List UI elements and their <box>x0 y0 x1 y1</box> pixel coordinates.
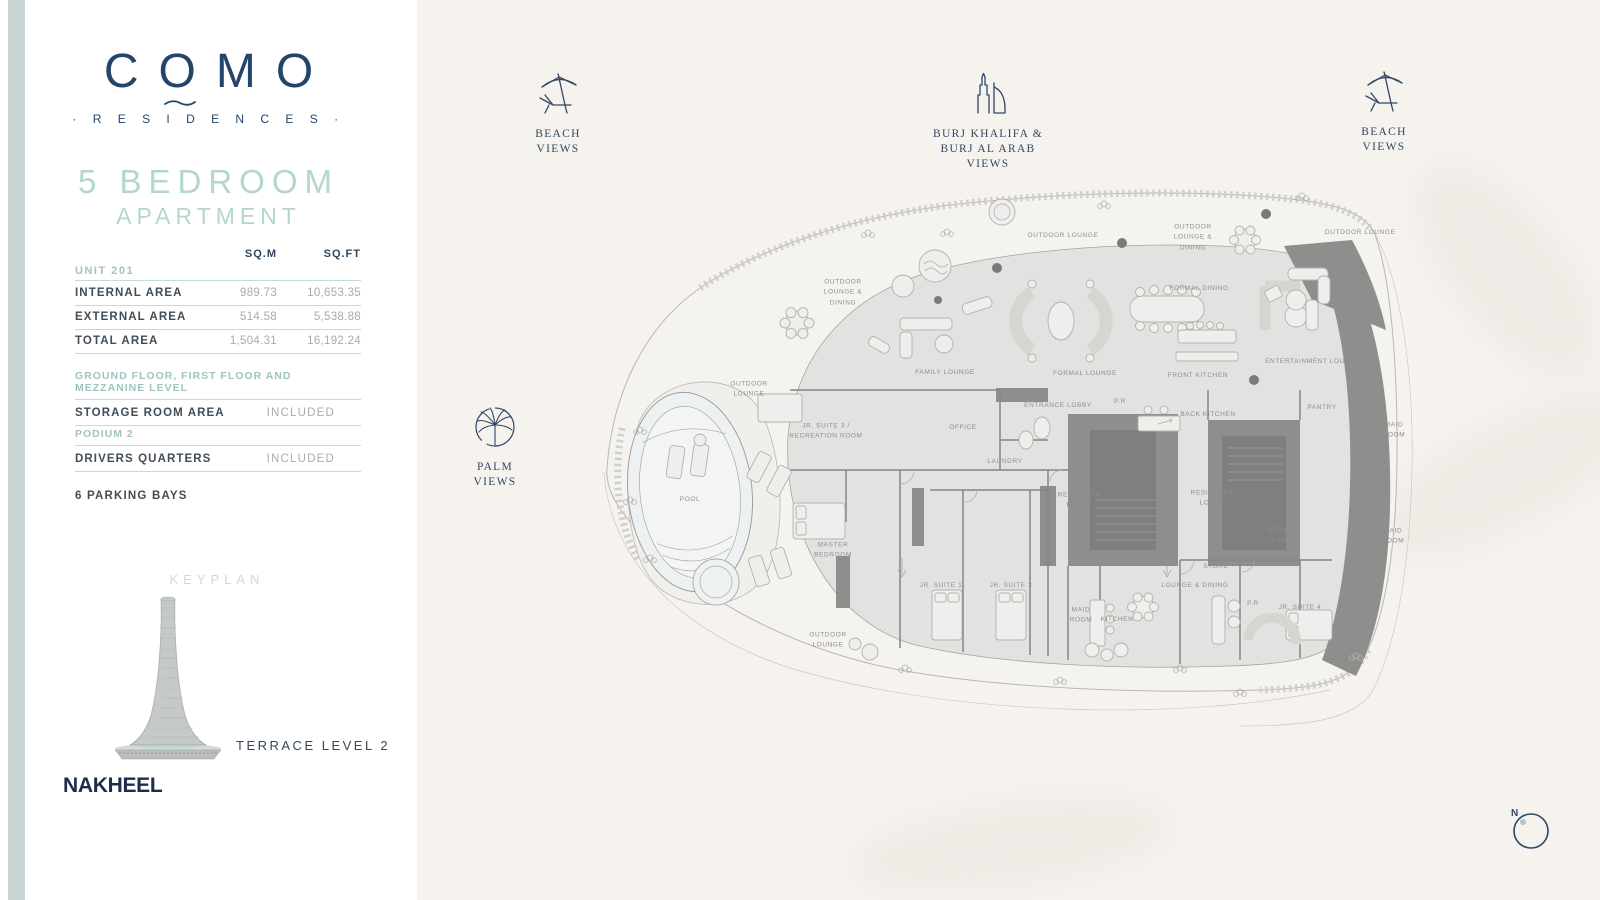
row-label: INTERNAL AREA <box>75 287 215 299</box>
floor-section-header: GROUND FLOOR, FIRST FLOOR AND MEZZANINE … <box>75 370 361 399</box>
unit-title-line1: 5 BEDROOM <box>0 163 417 201</box>
table-row: EXTERNAL AREA 514.58 5,538.88 <box>75 305 361 330</box>
area-table: SQ.M SQ.FT UNIT 201 INTERNAL AREA 989.73… <box>75 248 361 354</box>
storage-row: STORAGE ROOM AREA INCLUDED <box>75 399 361 426</box>
como-logo-subtitle: · R E S I D E N C E S · <box>0 112 417 126</box>
keyplan-title: KEYPLAN <box>0 572 434 587</box>
sidebar-accent-band <box>8 0 25 900</box>
row-sqft: 5,538.88 <box>277 311 361 323</box>
brochure-page: COMO · R E S I D E N C E S · 5 BEDROOM A… <box>0 0 1600 900</box>
unit-section-label: UNIT 201 <box>75 265 361 280</box>
row-sqm: 1,504.31 <box>215 335 277 347</box>
storage-label: STORAGE ROOM AREA <box>75 407 225 419</box>
como-logo-text: COMO <box>104 45 333 98</box>
como-logo-wave-icon <box>163 98 197 108</box>
floor-plan-drawing <box>417 0 1600 900</box>
podium-section-header: PODIUM 2 <box>75 428 361 445</box>
row-sqm: 989.73 <box>215 287 277 299</box>
drivers-row: DRIVERS QUARTERS INCLUDED <box>75 445 361 472</box>
nakheel-logo: NAKHEEL <box>63 774 162 798</box>
floor-section: GROUND FLOOR, FIRST FLOOR AND MEZZANINE … <box>75 370 361 426</box>
compass-n-label: N <box>1511 808 1518 819</box>
col-sqft: SQ.FT <box>277 248 361 260</box>
unit-title: 5 BEDROOM APARTMENT <box>0 163 417 230</box>
como-logo: COMO <box>0 44 417 99</box>
parking-note: 6 PARKING BAYS <box>75 490 188 502</box>
table-row: INTERNAL AREA 989.73 10,653.35 <box>75 280 361 305</box>
podium-section: PODIUM 2 DRIVERS QUARTERS INCLUDED <box>75 428 361 472</box>
floor-plan-panel: BEACH VIEWS BURJ KHALIFA & BURJ AL ARAB … <box>417 0 1600 900</box>
row-sqft: 10,653.35 <box>277 287 361 299</box>
drivers-value: INCLUDED <box>267 453 335 465</box>
sidebar: COMO · R E S I D E N C E S · 5 BEDROOM A… <box>0 0 417 900</box>
row-label: EXTERNAL AREA <box>75 311 215 323</box>
keyplan-tower-illustration <box>105 593 231 765</box>
area-table-header: SQ.M SQ.FT <box>75 248 361 260</box>
unit-title-line2: APARTMENT <box>0 203 417 230</box>
level-label: TERRACE LEVEL 2 <box>236 738 390 753</box>
north-compass: N <box>1496 796 1566 866</box>
table-row: TOTAL AREA 1,504.31 16,192.24 <box>75 329 361 354</box>
row-sqm: 514.58 <box>215 311 277 323</box>
drivers-label: DRIVERS QUARTERS <box>75 453 211 465</box>
col-sqm: SQ.M <box>215 248 277 260</box>
row-sqft: 16,192.24 <box>277 335 361 347</box>
storage-value: INCLUDED <box>267 407 335 419</box>
row-label: TOTAL AREA <box>75 335 215 347</box>
